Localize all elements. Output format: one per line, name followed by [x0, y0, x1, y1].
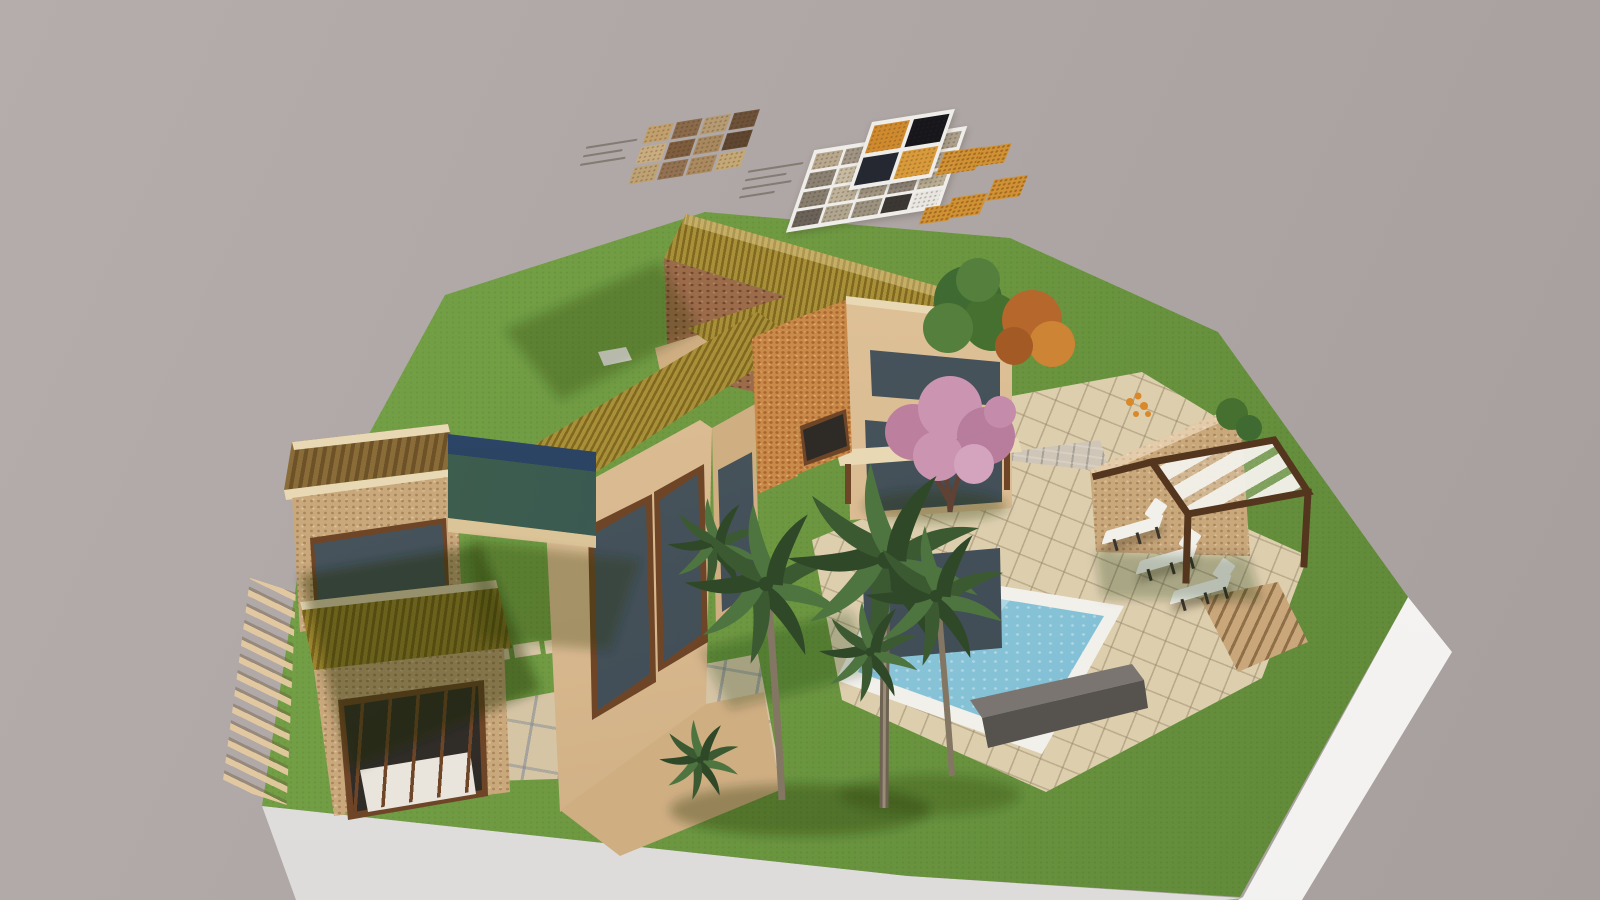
material-tile: [693, 134, 725, 155]
chair-leg: [1112, 539, 1118, 551]
material-tile: [880, 193, 912, 213]
material-tile: [811, 150, 843, 170]
chair-leg: [1146, 569, 1152, 581]
material-board-a: [570, 109, 760, 194]
material-tile: [904, 114, 949, 147]
material-tile: [657, 159, 689, 180]
label-dash: [580, 157, 626, 166]
chair-leg: [1170, 562, 1176, 574]
label-dash: [748, 162, 804, 173]
label-dash: [586, 139, 638, 149]
chair-leg: [1223, 587, 1229, 599]
material-tile: [821, 203, 853, 223]
material-tile: [671, 118, 703, 139]
material-tile: [893, 146, 938, 179]
material-tile: [798, 188, 830, 208]
chair-leg: [1155, 527, 1161, 539]
material-tile: [635, 143, 667, 164]
material-tile: [805, 169, 837, 189]
roof-tile-swatch: [986, 175, 1028, 201]
label-dash: [745, 173, 787, 182]
board-a-grid: [628, 109, 760, 185]
material-tile: [728, 109, 760, 130]
material-tile: [791, 207, 823, 227]
label-dash: [583, 149, 623, 157]
chair-leg: [1136, 532, 1142, 544]
chair-leg: [1180, 599, 1186, 611]
chair-leg: [1189, 557, 1195, 569]
material-tile: [664, 139, 696, 160]
material-tile: [642, 123, 674, 144]
material-tile: [721, 129, 753, 150]
label-dash: [739, 191, 775, 199]
material-tile: [628, 163, 660, 184]
material-tile: [700, 114, 732, 135]
material-tile: [686, 154, 718, 175]
material-tile: [854, 152, 899, 185]
material-tile: [714, 150, 746, 171]
material-tile: [865, 120, 910, 153]
board-a-labels: [580, 139, 638, 166]
render-canvas: [0, 0, 1600, 900]
material-tile: [851, 198, 883, 218]
chair-leg: [1204, 592, 1210, 604]
board-b-labels: [739, 162, 804, 199]
label-dash: [742, 180, 792, 190]
